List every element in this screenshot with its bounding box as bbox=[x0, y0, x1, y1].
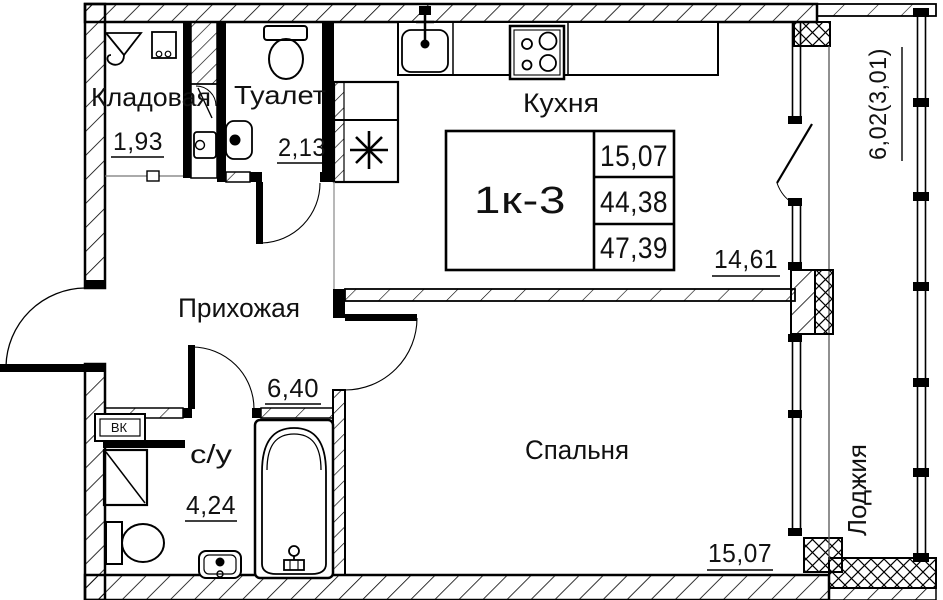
toilet-tank-icon bbox=[264, 26, 307, 40]
label-storage: Кладовая bbox=[91, 82, 211, 112]
floor-plan-page: ВК 1к-3 15,07 44,38 47,3 bbox=[0, 0, 943, 600]
label-toilet: Туалет bbox=[234, 80, 326, 110]
label-bathroom: с/у bbox=[190, 439, 232, 469]
bathroom-door-leaf bbox=[188, 345, 195, 409]
area-bedroom: 15,07 bbox=[708, 538, 772, 568]
bathroom-sink-drain bbox=[216, 558, 225, 567]
sink-drain bbox=[230, 135, 240, 145]
boiler-dial bbox=[196, 141, 205, 150]
shelf-foot bbox=[165, 51, 171, 57]
hanger-icon bbox=[106, 33, 141, 55]
bedroom-window bbox=[793, 338, 801, 534]
area-storage: 1,93 bbox=[113, 128, 163, 156]
area-hallway: 6,40 bbox=[267, 373, 319, 403]
shaft-wall bbox=[334, 82, 344, 182]
window-block bbox=[788, 334, 802, 342]
toilet-bottom-wall bbox=[226, 172, 250, 182]
window-block bbox=[788, 528, 802, 536]
shelf-box-icon bbox=[152, 32, 176, 58]
sink-mount bbox=[221, 133, 226, 146]
balcony-door-leaf bbox=[777, 124, 812, 183]
toilet-door-leaf bbox=[256, 182, 263, 244]
unit-info-table: 1к-3 15,07 44,38 47,39 bbox=[446, 131, 674, 270]
area-loggia: 6,02(3,01) bbox=[865, 48, 892, 160]
bathroom-right-wall bbox=[333, 390, 345, 575]
utility-box-label: ВК bbox=[111, 420, 128, 435]
label-hallway: Прихожая bbox=[178, 293, 300, 323]
vent-duct bbox=[191, 22, 217, 84]
label-loggia: Лоджия bbox=[842, 444, 872, 536]
bathroom-door-post-right bbox=[252, 408, 261, 418]
bedroom-door-arc bbox=[345, 318, 417, 390]
floor-plan-drawing: ВК 1к-3 15,07 44,38 47,3 bbox=[0, 0, 943, 600]
toilet-bottom-wall-right bbox=[320, 172, 334, 182]
window-wall bbox=[777, 22, 833, 536]
entrance-jamb-top bbox=[85, 280, 105, 288]
bathroom-door-post-left bbox=[183, 408, 192, 418]
label-kitchen: Кухня bbox=[523, 88, 599, 118]
wc-bowl-icon bbox=[122, 524, 164, 562]
area-kitchen: 14,61 bbox=[714, 244, 778, 274]
wall-bottom bbox=[85, 575, 829, 600]
toilet-bowl-icon bbox=[269, 39, 303, 79]
loggia-window-mullions bbox=[913, 8, 929, 562]
bathtub-icon bbox=[255, 420, 333, 578]
wall-loggia-bottom bbox=[829, 558, 936, 588]
room-labels: Кладовая 1,93 Туалет 2,13 Кухня 14,61 Пр… bbox=[91, 47, 902, 570]
window-block bbox=[788, 262, 802, 270]
window-block bbox=[788, 198, 802, 206]
toilet-door-post bbox=[250, 172, 262, 182]
entrance-door-leaf bbox=[0, 364, 85, 372]
storage-opening-marker bbox=[147, 171, 159, 181]
entrance-jamb-bottom bbox=[85, 364, 105, 372]
bedroom-partition-wall bbox=[345, 289, 795, 301]
bathroom-door-arc bbox=[192, 347, 254, 409]
unit-label: 1к-3 bbox=[474, 180, 566, 222]
window-block bbox=[788, 116, 802, 124]
entrance-door-arc bbox=[6, 288, 85, 366]
window-pier-cross bbox=[815, 270, 833, 334]
wall-left-upper bbox=[85, 4, 105, 288]
wc-tank-icon bbox=[106, 522, 122, 564]
wall-left-lower bbox=[85, 364, 105, 600]
toilet-door-arc bbox=[262, 183, 320, 243]
bathroom-top-wall-right bbox=[261, 408, 333, 418]
shower-tray-diagonal bbox=[106, 452, 145, 503]
stove-icon bbox=[510, 26, 564, 79]
hanger-hook-icon bbox=[107, 55, 124, 65]
table-row-living-area: 44,38 bbox=[600, 186, 668, 219]
window-block bbox=[788, 410, 802, 418]
kitchen-window-lower bbox=[793, 202, 801, 266]
area-bathroom: 4,24 bbox=[186, 490, 236, 520]
shelf-foot bbox=[156, 51, 162, 57]
bedroom-door-leaf bbox=[345, 314, 417, 321]
bedroom-wall-stub bbox=[333, 289, 345, 318]
pier-top-right bbox=[794, 22, 830, 46]
table-row-total-area: 47,39 bbox=[600, 232, 668, 265]
table-row-kitchen-area: 15,07 bbox=[600, 140, 668, 173]
wall-top bbox=[85, 4, 817, 22]
area-toilet: 2,13 bbox=[278, 134, 326, 162]
label-bedroom: Спальня bbox=[525, 435, 629, 465]
toilet-left-wall bbox=[217, 22, 226, 182]
wall-bottom-right-band bbox=[829, 588, 936, 600]
window-pier-hatch bbox=[791, 270, 815, 334]
